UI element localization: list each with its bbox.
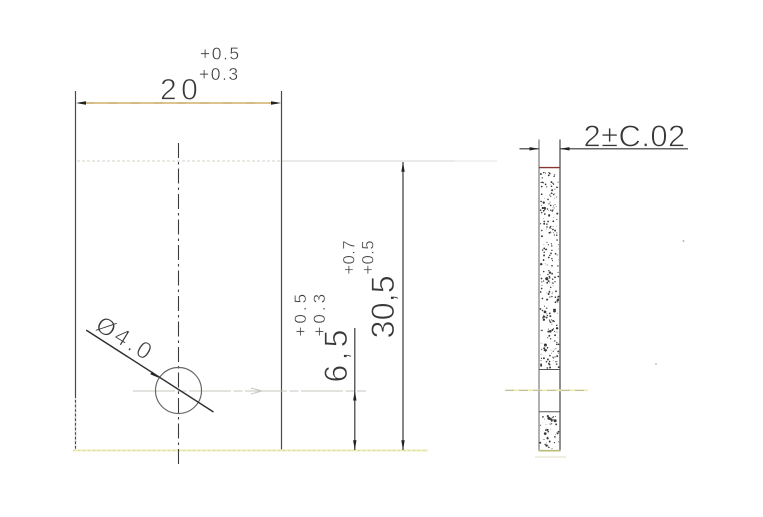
svg-text:+0.5: +0.5 xyxy=(360,240,378,275)
svg-text:2±C.02: 2±C.02 xyxy=(584,118,686,153)
svg-text:+0.5: +0.5 xyxy=(200,44,241,64)
svg-text:+0.3: +0.3 xyxy=(199,64,240,84)
svg-text:+0.3: +0.3 xyxy=(310,291,329,337)
svg-text:30,5: 30,5 xyxy=(365,275,401,338)
svg-text:+0.7: +0.7 xyxy=(341,240,359,275)
svg-text:+0.5: +0.5 xyxy=(291,291,310,337)
svg-text:20: 20 xyxy=(160,74,202,107)
